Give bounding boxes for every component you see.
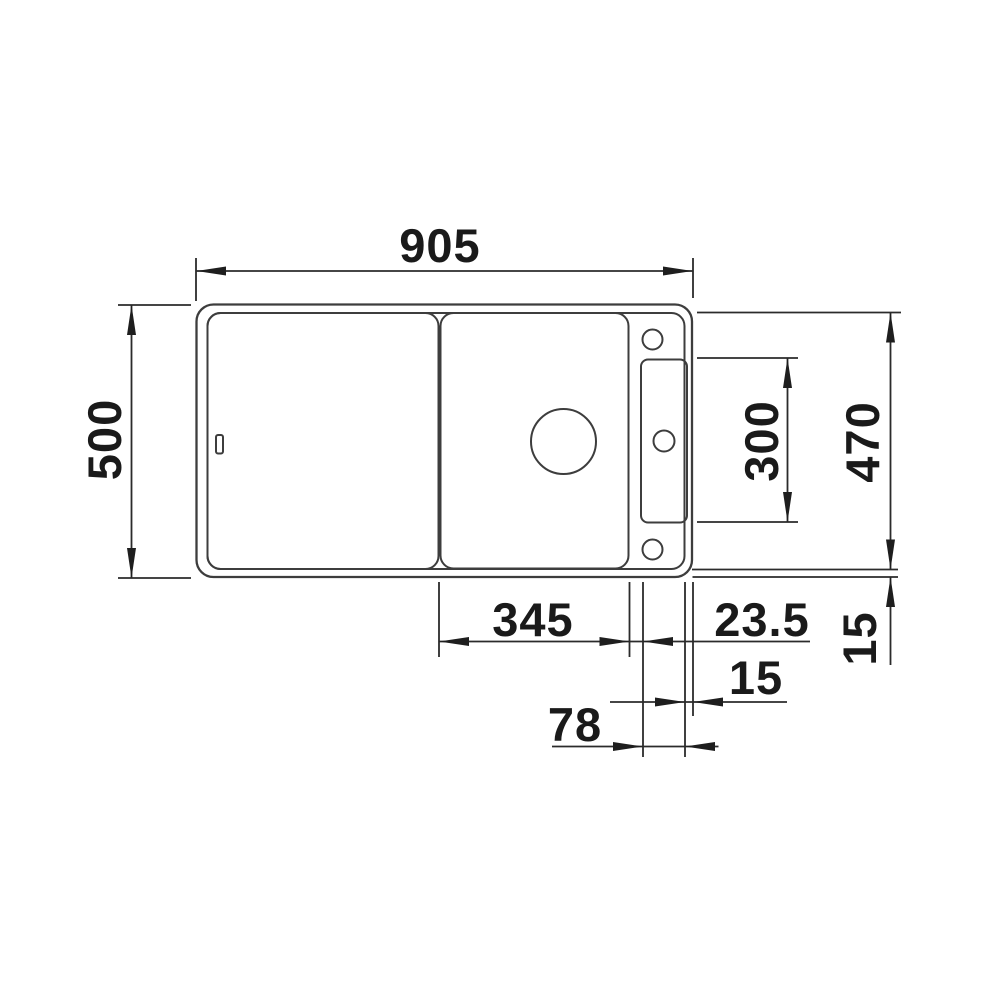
dim-500-arrow-bottom <box>127 548 136 578</box>
tap-hole-middle-icon <box>654 431 675 452</box>
dim-tap-ledge-length: 300 <box>697 358 798 522</box>
sink-dimension-drawing: 905 500 470 15 <box>0 0 992 992</box>
outer-sink-outline <box>197 305 693 578</box>
drain-hole-icon <box>531 409 596 474</box>
dim-345-arrow-right <box>600 637 630 646</box>
dim-tap-ledge-length-label: 300 <box>735 400 788 481</box>
dim-overall-depth: 500 <box>78 305 191 578</box>
dim-inner-depth: 470 <box>692 313 901 578</box>
dim-78-arrow-left <box>613 742 643 751</box>
cutting-board-outline <box>441 313 629 569</box>
dim-overall-width-label: 905 <box>399 219 480 272</box>
dim-300-arrow-top <box>783 358 792 388</box>
dim-15h-arrow-right <box>693 698 723 707</box>
dim-ledge-to-edge: 15 <box>610 651 787 707</box>
drainboard-section-outline <box>208 313 439 569</box>
dim-300-arrow-bottom <box>783 492 792 522</box>
dim-470-arrow-top <box>886 313 895 343</box>
dim-15h-arrow-left <box>655 698 685 707</box>
dim-board-to-ledge-gap-label: 23.5 <box>714 593 809 646</box>
dim-905-arrow-left <box>197 267 227 276</box>
dim-overall-depth-label: 500 <box>78 399 131 480</box>
dim-board-section-width-label: 345 <box>492 593 573 646</box>
dim-470-arrow-bottom <box>886 540 895 570</box>
dim-overall-width: 905 <box>196 219 693 301</box>
dim-15r-arrow <box>886 577 895 607</box>
dim-78-arrow-right <box>685 742 715 751</box>
dim-905-arrow-right <box>663 267 693 276</box>
dim-470-15-extension-bottom <box>692 570 898 578</box>
tap-ledge-outline <box>641 360 687 523</box>
dim-ledge-to-edge-label: 15 <box>729 651 783 704</box>
technical-drawing-canvas: 905 500 470 15 <box>0 0 992 992</box>
overflow-slot-icon <box>216 435 223 454</box>
dim-ledge-width-label: 78 <box>548 698 602 751</box>
dim-23.5-arrow <box>643 637 673 646</box>
dim-345-arrow-left <box>439 637 469 646</box>
dim-inner-depth-label: 470 <box>836 401 889 482</box>
dim-500-arrow-top <box>127 305 136 335</box>
tap-hole-top-icon <box>643 330 663 350</box>
dim-bottom-rim: 15 <box>833 577 895 666</box>
sink-geometry <box>197 305 693 578</box>
inner-rim-outline <box>208 313 685 569</box>
dim-bottom-rim-label: 15 <box>833 611 886 665</box>
tap-hole-bottom-icon <box>643 540 663 560</box>
dim-board-section: 345 23.5 <box>439 593 810 646</box>
